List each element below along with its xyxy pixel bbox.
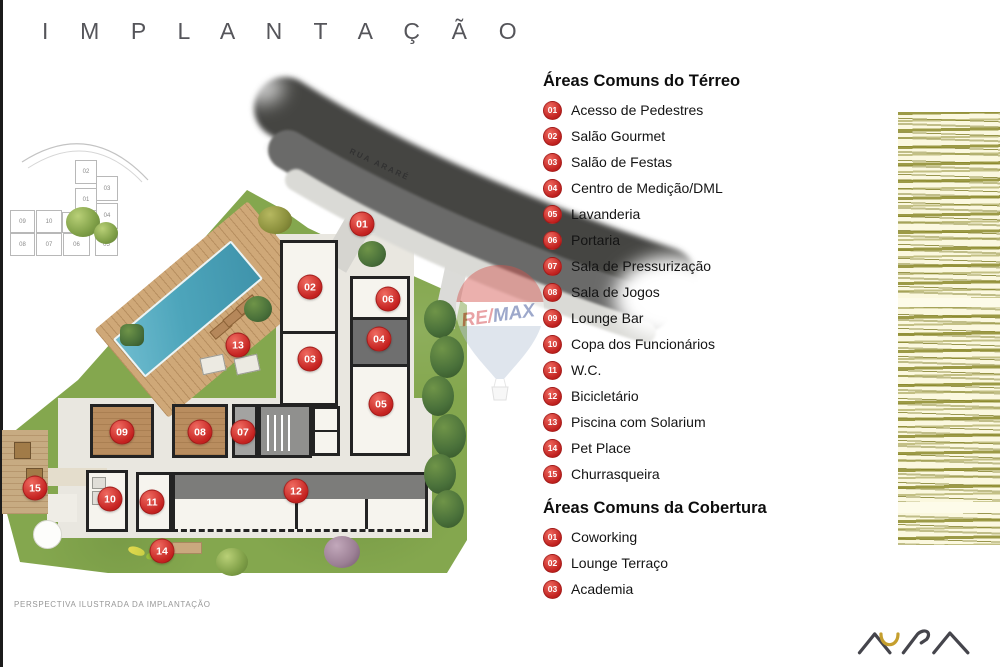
legend-item-label: Sala de Pressurização — [571, 258, 711, 274]
plan-marker: 06 — [376, 287, 401, 312]
plan-marker: 13 — [226, 333, 251, 358]
legend-item-label: Piscina com Solarium — [571, 414, 706, 430]
legend-item-number: 10 — [543, 335, 562, 354]
plan-marker: 01 — [350, 212, 375, 237]
decorative-art-strip — [898, 112, 1000, 545]
plan-marker: 04 — [367, 327, 392, 352]
legend-item: 08 Sala de Jogos — [543, 283, 853, 301]
legend-item-number: 09 — [543, 309, 562, 328]
plan-marker: 14 — [150, 539, 175, 564]
legend-item-number: 13 — [543, 413, 562, 432]
legend-item-number: 07 — [543, 257, 562, 276]
legend-item-label: Pet Place — [571, 440, 631, 456]
legend-heading: Áreas Comuns da Cobertura — [543, 499, 853, 518]
legend: Áreas Comuns do Térreo 01 Acesso de Pede… — [543, 72, 853, 606]
legend-item-number: 15 — [543, 465, 562, 484]
legend-item-number: 02 — [543, 127, 562, 146]
legend-item-label: Acesso de Pedestres — [571, 102, 703, 118]
plan-marker: 12 — [284, 479, 309, 504]
legend-item-label: W.C. — [571, 362, 601, 378]
legend-item: 03 Salão de Festas — [543, 153, 853, 171]
legend-item: 02 Salão Gourmet — [543, 127, 853, 145]
legend-item-label: Lounge Terraço — [571, 555, 668, 571]
plan-marker: 05 — [369, 392, 394, 417]
legend-item-number: 01 — [543, 528, 562, 547]
legend-item-number: 14 — [543, 439, 562, 458]
legend-item-number: 06 — [543, 231, 562, 250]
legend-section-cobertura: Áreas Comuns da Cobertura 01 Coworking 0… — [543, 499, 853, 598]
plan-marker: 08 — [188, 420, 213, 445]
legend-item: 13 Piscina com Solarium — [543, 413, 853, 431]
legend-item: 02 Lounge Terraço — [543, 554, 853, 572]
legend-item-label: Lounge Bar — [571, 310, 643, 326]
plan-marker: 11 — [140, 490, 165, 515]
legend-item-number: 03 — [543, 580, 562, 599]
legend-item-label: Portaria — [571, 232, 620, 248]
legend-item-number: 12 — [543, 387, 562, 406]
legend-item: 09 Lounge Bar — [543, 309, 853, 327]
site-plan-page: I M P L A N T A Ç Ã O 020301040910080706… — [0, 0, 1000, 667]
legend-item: 06 Portaria — [543, 231, 853, 249]
plan-marker: 07 — [231, 420, 256, 445]
aura-logo — [855, 624, 975, 660]
plan-marker: 09 — [110, 420, 135, 445]
plan-marker: 15 — [23, 476, 48, 501]
plan-marker: 02 — [298, 275, 323, 300]
legend-item-label: Salão Gourmet — [571, 128, 665, 144]
legend-item-number: 03 — [543, 153, 562, 172]
legend-item-label: Salão de Festas — [571, 154, 672, 170]
caption: PERSPECTIVA ILUSTRADA DA IMPLANTAÇÃO — [14, 600, 211, 609]
legend-item-number: 05 — [543, 205, 562, 224]
legend-item-number: 11 — [543, 361, 562, 380]
legend-item-label: Sala de Jogos — [571, 284, 660, 300]
legend-item-label: Centro de Medição/DML — [571, 180, 723, 196]
plan-marker: 03 — [298, 347, 323, 372]
legend-item: 07 Sala de Pressurização — [543, 257, 853, 275]
legend-item: 05 Lavanderia — [543, 205, 853, 223]
legend-section-terreo: Áreas Comuns do Térreo 01 Acesso de Pede… — [543, 72, 853, 483]
legend-item: 14 Pet Place — [543, 439, 853, 457]
legend-item: 01 Acesso de Pedestres — [543, 101, 853, 119]
plan-marker: 10 — [98, 487, 123, 512]
legend-item-label: Coworking — [571, 529, 637, 545]
legend-item: 11 W.C. — [543, 361, 853, 379]
legend-item: 10 Copa dos Funcionários — [543, 335, 853, 353]
legend-items-cobertura: 01 Coworking 02 Lounge Terraço 03 Academ… — [543, 528, 853, 598]
legend-item-label: Churrasqueira — [571, 466, 660, 482]
legend-item-number: 02 — [543, 554, 562, 573]
legend-item-label: Academia — [571, 581, 633, 597]
legend-item: 03 Academia — [543, 580, 853, 598]
legend-item: 12 Bicicletário — [543, 387, 853, 405]
legend-item: 01 Coworking — [543, 528, 853, 546]
legend-item-label: Lavanderia — [571, 206, 640, 222]
remax-balloon-watermark: RE/MAX — [452, 262, 548, 404]
legend-item-label: Copa dos Funcionários — [571, 336, 715, 352]
legend-items-terreo: 01 Acesso de Pedestres 02 Salão Gourmet … — [543, 101, 853, 483]
legend-item-number: 04 — [543, 179, 562, 198]
legend-heading: Áreas Comuns do Térreo — [543, 72, 853, 91]
legend-item-number: 01 — [543, 101, 562, 120]
legend-item-number: 08 — [543, 283, 562, 302]
legend-item: 15 Churrasqueira — [543, 465, 853, 483]
legend-item-label: Bicicletário — [571, 388, 639, 404]
legend-item: 04 Centro de Medição/DML — [543, 179, 853, 197]
